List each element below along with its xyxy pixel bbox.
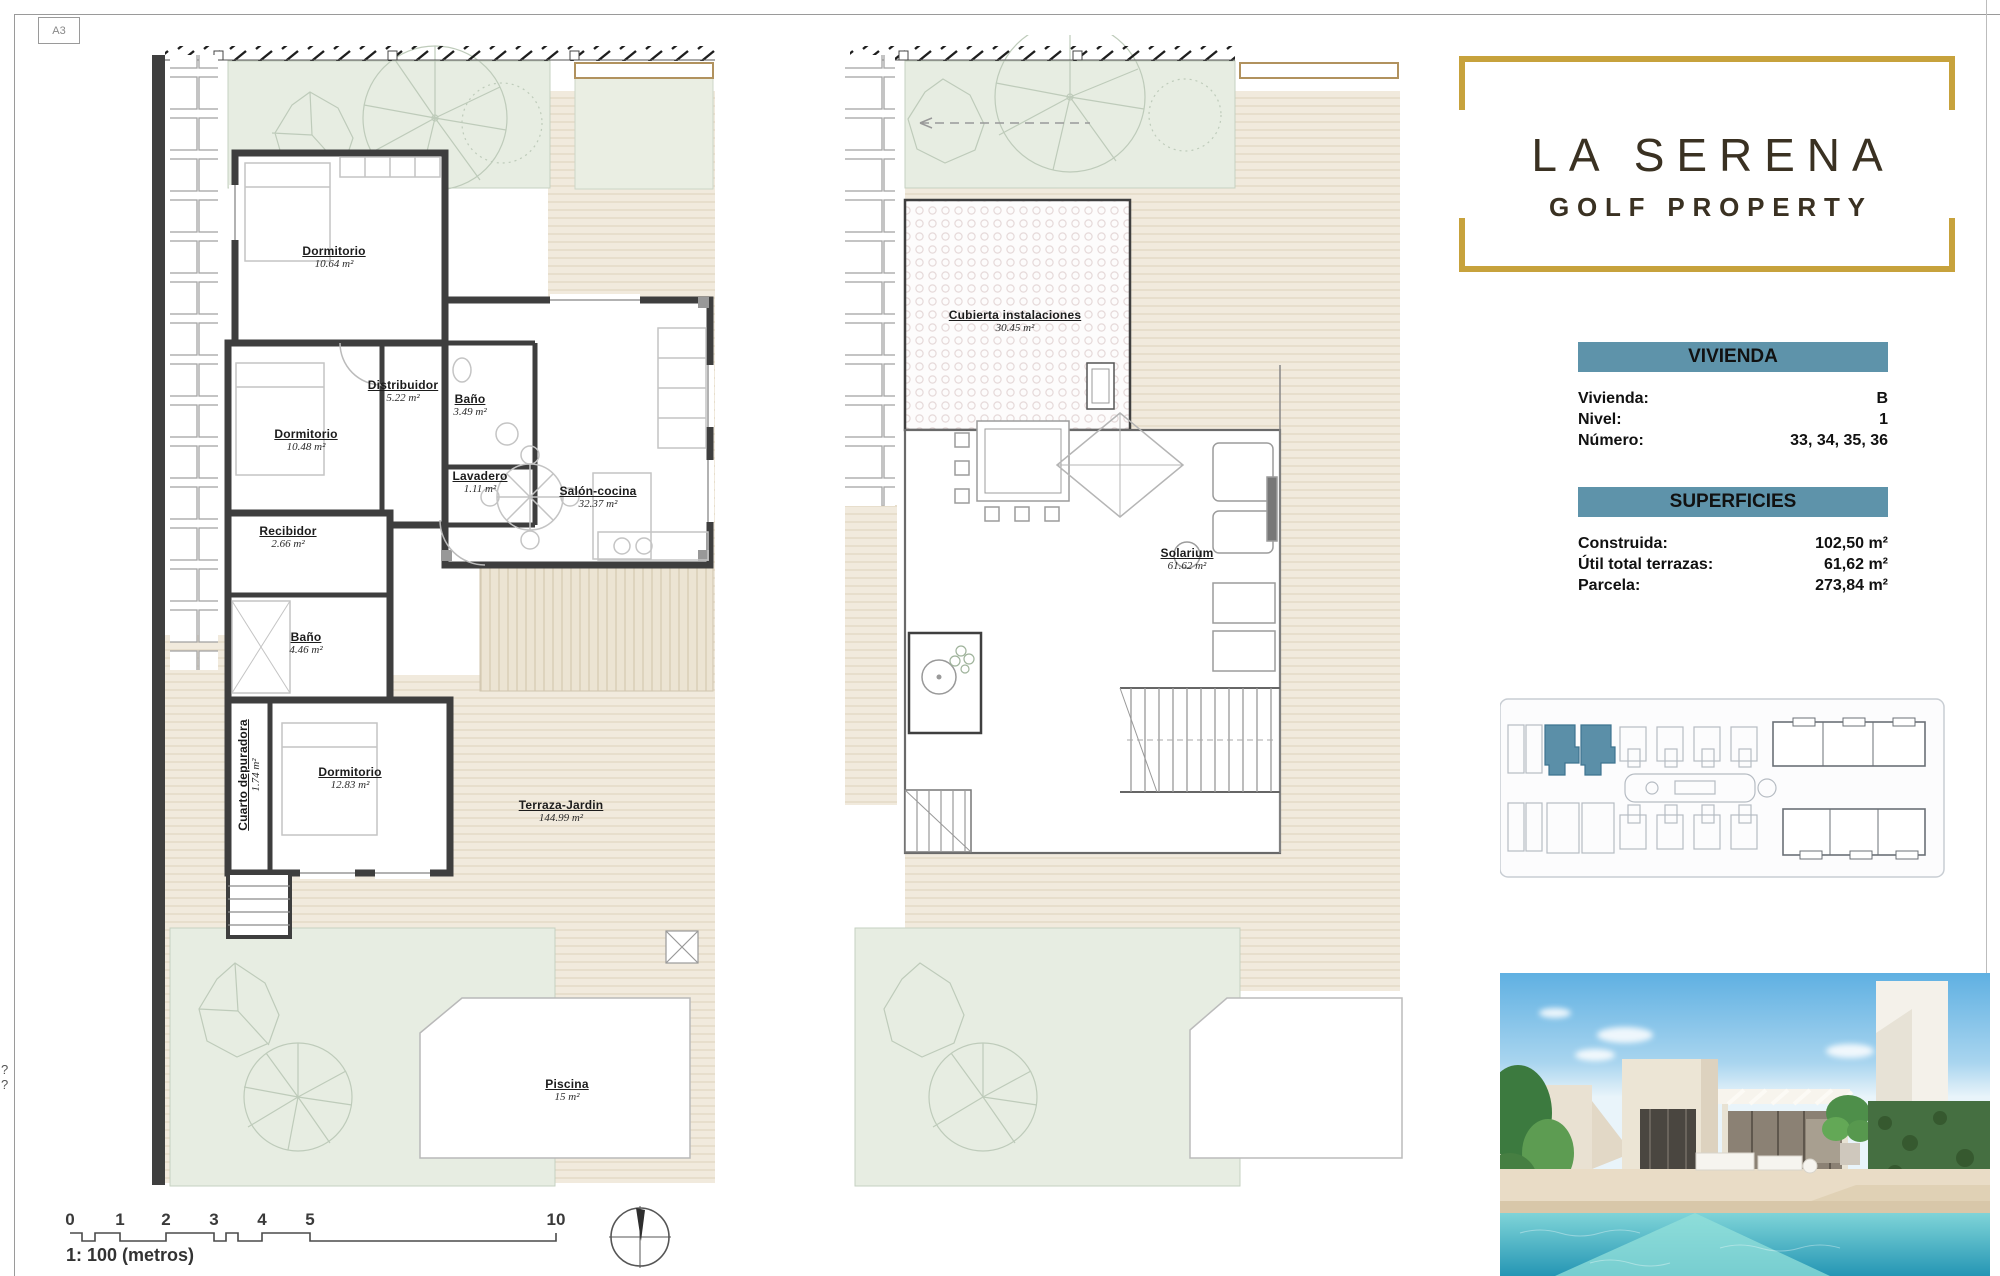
paper-format-label: A3 — [38, 17, 80, 44]
boundary-wall — [152, 55, 165, 1185]
scale-step-line — [70, 1233, 556, 1241]
shower-area — [909, 633, 981, 733]
site-key-plan — [1500, 697, 1990, 889]
scale-tick: 10 — [547, 1210, 566, 1229]
garden-top-right — [575, 67, 713, 189]
property-render-photo — [1500, 973, 1990, 1276]
canopy — [575, 63, 713, 78]
ground-floor-plan — [150, 35, 735, 1190]
parasol-icon — [666, 931, 698, 963]
scale-tick: 1 — [115, 1210, 124, 1229]
superficies-panel: SUPERFICIES Construida:102,50 m²Útil tot… — [1578, 487, 1888, 596]
panel-row: Parcela:273,84 m² — [1578, 575, 1888, 596]
roof-plan — [835, 35, 1415, 1190]
fence-zigzag — [165, 46, 715, 61]
scale-tick: 5 — [305, 1210, 314, 1229]
scale-tick: 3 — [209, 1210, 218, 1229]
pool-void — [1190, 998, 1402, 1158]
compass-icon — [609, 1206, 671, 1268]
panel-row: Número:33, 34, 35, 36 — [1578, 430, 1888, 451]
vivienda-header: VIVIENDA — [1578, 342, 1888, 372]
logo-title: LA SERENA — [1459, 128, 1955, 182]
sheet-border-top — [14, 14, 2000, 15]
scale-bar: 01234510 1: 100 (metros) — [40, 1195, 700, 1275]
side-steps — [845, 55, 895, 506]
panel-row: Útil total terrazas:61,62 m² — [1578, 554, 1888, 575]
vivienda-panel: VIVIENDA Vivienda:BNivel:1Número:33, 34,… — [1578, 342, 1888, 451]
garden-bottom — [855, 928, 1240, 1186]
scale-tick: 2 — [161, 1210, 170, 1229]
superficies-header: SUPERFICIES — [1578, 487, 1888, 517]
equipment-unit — [1087, 363, 1114, 409]
pool-coping — [1500, 1201, 1990, 1215]
corner-stair — [905, 790, 971, 852]
logo-subtitle: GOLF PROPERTY — [1459, 192, 1955, 223]
side-steps — [170, 55, 218, 670]
canopy — [1240, 63, 1398, 78]
scale-tick: 4 — [257, 1210, 267, 1229]
edge-marks: ?? — [1, 1062, 8, 1092]
logo-frame-top — [1459, 56, 1955, 110]
wood-deck — [480, 563, 713, 691]
brand-logo: LA SERENA GOLF PROPERTY — [1459, 56, 1955, 272]
interior-stair — [228, 873, 290, 937]
logo-frame-bottom — [1459, 218, 1955, 272]
scale-tick: 0 — [65, 1210, 74, 1229]
plan-sheet: A3 ?? — [0, 0, 2000, 1276]
scale-label: 1: 100 (metros) — [66, 1245, 194, 1266]
pool — [420, 998, 690, 1158]
sheet-border-left — [14, 14, 15, 1276]
panel-row: Nivel:1 — [1578, 409, 1888, 430]
panel-row: Vivienda:B — [1578, 388, 1888, 409]
scale-tick-labels: 01234510 — [65, 1210, 565, 1229]
panel-row: Construida:102,50 m² — [1578, 533, 1888, 554]
